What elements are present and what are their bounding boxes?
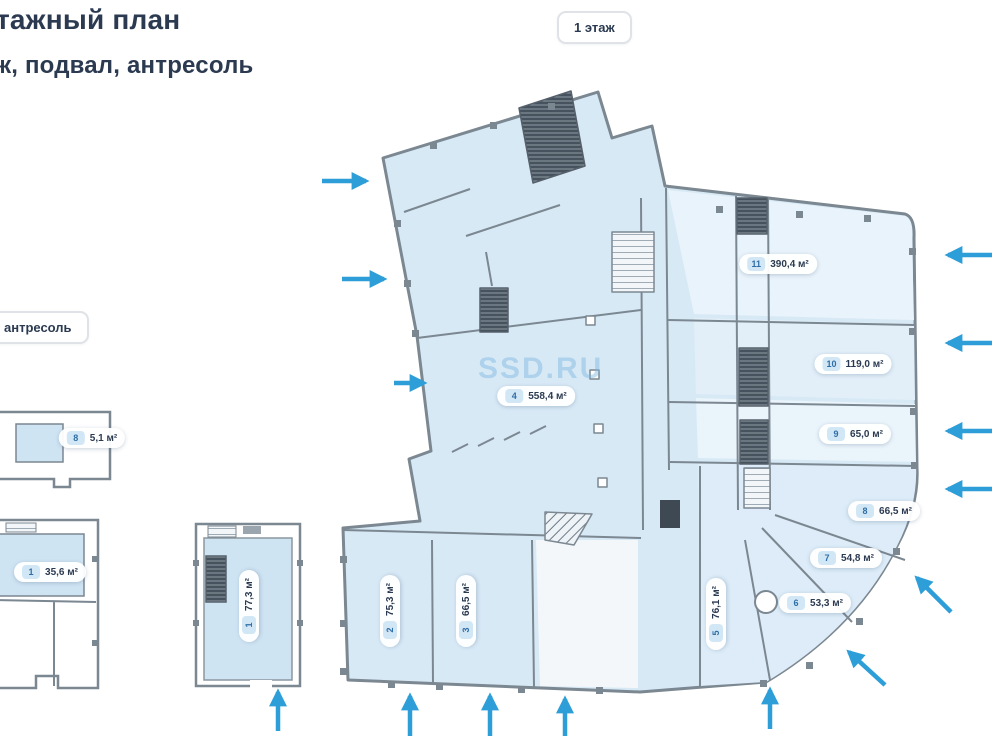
elevator-shaft [660, 500, 680, 528]
room-area: 390,4 м² [770, 259, 809, 270]
room-area: 65,0 м² [850, 429, 883, 440]
room-number: 3 [459, 621, 473, 639]
room-label-6: 6 53,3 м² [779, 593, 851, 613]
page-title: тажный план [0, 4, 180, 36]
column-circle [755, 591, 777, 613]
room-area: 75,3 м² [385, 583, 396, 616]
room-label-2: 2 75,3 м² [380, 575, 400, 647]
room-label-1-left: 1 35,6 м² [14, 562, 86, 582]
room-number: 8 [67, 431, 85, 445]
room-number: 1 [242, 616, 256, 634]
room-area: 77,3 м² [244, 578, 255, 611]
room-label-4: 4 558,4 м² [497, 386, 575, 406]
room-area: 5,1 м² [90, 433, 117, 444]
room-number: 9 [827, 427, 845, 441]
room-area: 66,5 м² [461, 583, 472, 616]
room-label-7: 7 54,8 м² [810, 548, 882, 568]
room-number: 1 [22, 565, 40, 579]
room-area: 119,0 м² [846, 359, 884, 370]
room-area: 76,1 м² [711, 586, 722, 619]
mezzanine-plan [0, 412, 110, 487]
room-number: 11 [747, 257, 765, 271]
floor-plan-page: тажный план ж, подвал, антресоль 1 этаж … [0, 0, 1000, 750]
room-label-11: 11 390,4 м² [739, 254, 817, 274]
room-number: 8 [856, 504, 874, 518]
room-number: 2 [383, 621, 397, 639]
room-label-8: 8 66,5 м² [848, 501, 920, 521]
entrance-arrow [917, 578, 951, 612]
page-subtitle: ж, подвал, антресоль [0, 52, 254, 80]
room-label-9: 9 65,0 м² [819, 424, 891, 444]
room-number: 5 [709, 624, 723, 642]
room-area: 558,4 м² [528, 391, 567, 402]
room-area: 66,5 м² [879, 506, 912, 517]
room-label-1-basement: 1 77,3 м² [239, 570, 259, 642]
room-label-10: 10 119,0 м² [815, 354, 892, 374]
entrance-arrow [849, 652, 885, 685]
room-area: 53,3 м² [810, 598, 843, 609]
room-label-8-mezzanine: 8 5,1 м² [59, 428, 125, 448]
mezzanine-badge[interactable]: антресоль [0, 311, 89, 344]
room-number: 4 [505, 389, 523, 403]
room-area: 35,6 м² [45, 567, 78, 578]
room-number: 10 [823, 357, 841, 371]
room-number: 7 [818, 551, 836, 565]
floor-badge[interactable]: 1 этаж [557, 11, 632, 44]
room-label-5: 5 76,1 м² [706, 578, 726, 650]
watermark: SSD.RU [478, 352, 603, 386]
left-lower-plan [0, 520, 98, 688]
room-number: 6 [787, 596, 805, 610]
room-area: 54,8 м² [841, 553, 874, 564]
room-label-3: 3 66,5 м² [456, 575, 476, 647]
